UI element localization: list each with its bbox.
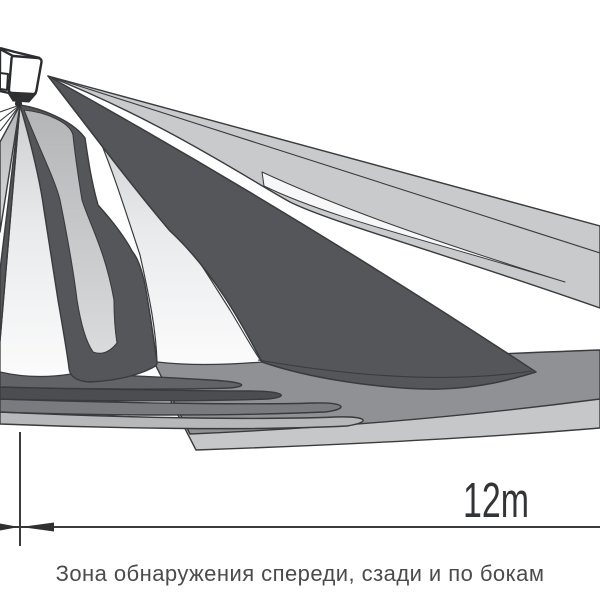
svg-text:Зона обнаружения спереди, сзад: Зона обнаружения спереди, сзади и по бок… [56,561,545,586]
svg-text:12m: 12m [463,474,529,528]
